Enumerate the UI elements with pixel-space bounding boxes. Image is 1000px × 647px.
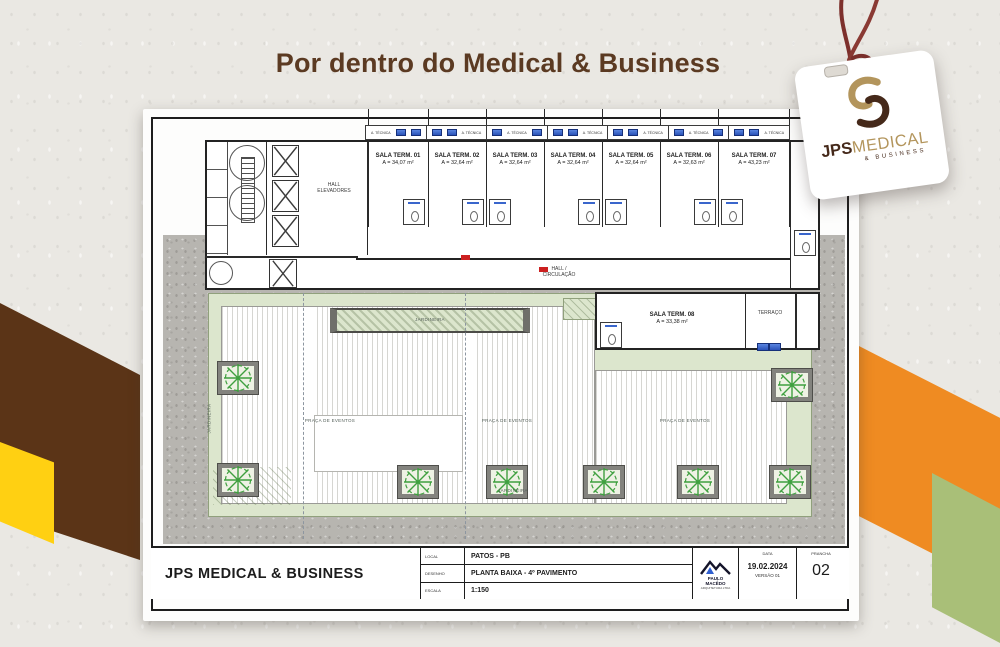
axis-line — [303, 293, 304, 539]
ac-unit-icon — [411, 129, 421, 136]
ac-unit-pair — [757, 338, 781, 356]
jardineira-label-vertical: JARDINEIRA — [207, 374, 212, 434]
architect-logo-cell: PAULOMACÊDO ARQUITETURA LTDA — [693, 548, 739, 599]
rooftop-ac-strip: A. TÉCNICA A. TÉCNICA A. TÉCNICA A. TÉCN… — [365, 125, 790, 140]
desenho-value: PLANTA BAIXA - 4º PAVIMENTO — [465, 565, 692, 581]
page-title: Por dentro do Medical & Business — [140, 48, 856, 79]
corridor-hall-circulacao: HALL / CIRCULAÇÃO — [356, 258, 790, 290]
local-value: PATOS - PB — [465, 548, 692, 564]
ac-segment: A. TÉCNICA — [366, 126, 427, 139]
ac-unit-icon — [492, 129, 502, 136]
date-cell: DATA 19.02.2024 VERSÃO 01 — [739, 548, 797, 599]
wc — [489, 199, 511, 225]
room-name: SALA TERM. 07 — [723, 153, 785, 160]
planter-tree — [677, 465, 719, 499]
ac-unit-icon — [628, 129, 638, 136]
ac-segment: A. TÉCNICA — [427, 126, 488, 139]
planter-tree — [771, 368, 813, 402]
wall — [205, 256, 358, 258]
sheet-number-cell: PRANCHA 02 — [797, 548, 845, 599]
ac-segment: A. TÉCNICA — [487, 126, 548, 139]
ac-segment: A. TÉCNICA — [729, 126, 789, 139]
fire-extinguisher-mark — [539, 267, 548, 272]
hall-elevadores-label: HALL ELEVADORES — [313, 182, 355, 194]
title-block-row-local: LOCAL PATOS - PB — [421, 548, 692, 565]
jps-swirl-logo-icon — [837, 71, 900, 134]
ac-segment: A. TÉCNICA — [608, 126, 669, 139]
ac-unit-icon — [749, 129, 759, 136]
wc — [403, 199, 425, 225]
ac-unit-icon — [568, 129, 578, 136]
date-label: DATA — [739, 551, 796, 556]
praca-label: PRAÇA DE EVENTOS — [640, 418, 730, 423]
fire-extinguisher-mark — [461, 255, 470, 260]
room-area: A = 43,23 m² — [723, 160, 785, 167]
plan-sheet: JARDINEIRA PRAÇA DE EVENTOS PRAÇA DE EVE… — [143, 109, 859, 621]
title-block-table: LOCAL PATOS - PB DESENHO PLANTA BAIXA - … — [421, 548, 693, 599]
balcony-strip — [207, 142, 228, 255]
poster: Por dentro do Medical & Business JARDINE… — [0, 0, 1000, 647]
wc — [605, 199, 627, 225]
planter-tree — [217, 361, 259, 395]
ac-unit-icon — [757, 343, 769, 351]
version-value: VERSÃO 01 — [739, 573, 796, 578]
ac-segment: A. TÉCNICA — [669, 126, 730, 139]
desenho-label: DESENHO — [421, 565, 465, 581]
jardineira-label: JARDINEIRA — [473, 488, 553, 493]
ac-unit-icon — [553, 129, 563, 136]
escala-label: ESCALA — [421, 583, 465, 599]
local-label: LOCAL — [421, 548, 465, 564]
title-block-row-escala: ESCALA 1:150 — [421, 583, 692, 599]
ac-unit-icon — [532, 129, 542, 136]
terraco-label: TERRAÇO — [749, 310, 791, 316]
planter-tree — [486, 465, 528, 499]
praca-label: PRAÇA DE EVENTOS — [285, 418, 375, 423]
room-name: SALA TERM. 03 — [489, 153, 541, 160]
tag-hole — [823, 64, 848, 78]
room-area: A = 32,64 m² — [431, 160, 483, 167]
room-area: A = 32,64 m² — [605, 160, 657, 167]
ac-unit-icon — [396, 129, 406, 136]
ac-unit-icon — [447, 129, 457, 136]
room-area: A = 32,64 m² — [547, 160, 599, 167]
ac-unit-icon — [613, 129, 623, 136]
date-value: 19.02.2024 — [739, 562, 796, 571]
room-name: SALA TERM. 01 — [371, 153, 425, 160]
elevator-shaft — [272, 215, 299, 247]
architect-firm: ARQUITETURA LTDA — [701, 586, 731, 590]
room-name: SALA TERM. 06 — [663, 153, 715, 160]
brand-tag: JPSMEDICAL & BUSINESS — [793, 49, 950, 201]
ac-unit-icon — [713, 129, 723, 136]
wc — [721, 199, 743, 225]
room-name: SALA TERM. 04 — [547, 153, 599, 160]
stair-treads — [241, 157, 255, 223]
ac-unit-icon — [432, 129, 442, 136]
room-sala-term-08-block: SALA TERM. 08A = 33,38 m² TERRAÇO — [595, 292, 820, 350]
ac-label: A. TÉCNICA — [462, 131, 482, 135]
ac-unit-icon — [734, 129, 744, 136]
ac-label: A. TÉCNICA — [583, 131, 603, 135]
axis-line — [465, 293, 466, 539]
planter-tree — [397, 465, 439, 499]
wc — [462, 199, 484, 225]
wc — [794, 230, 816, 256]
hall-elevadores: HALL ELEVADORES — [301, 142, 368, 255]
title-block-row-desenho: DESENHO PLANTA BAIXA - 4º PAVIMENTO — [421, 565, 692, 582]
ac-label: A. TÉCNICA — [371, 131, 391, 135]
wall — [795, 294, 797, 348]
wc — [578, 199, 600, 225]
ac-segment: A. TÉCNICA — [548, 126, 609, 139]
wc — [600, 322, 622, 348]
elevator-shaft — [272, 180, 299, 212]
room-name: SALA TERM. 05 — [605, 153, 657, 160]
planter-tree — [769, 465, 811, 499]
wc — [694, 199, 716, 225]
room-area: A = 32,63 m² — [663, 160, 715, 167]
mountain-logo-icon — [699, 558, 733, 576]
room-area: A = 34,07 m² — [371, 160, 425, 167]
room-area: A = 33,38 m² — [627, 319, 717, 326]
central-void — [314, 415, 463, 472]
project-name: JPS MEDICAL & BUSINESS — [151, 548, 421, 599]
ac-unit-icon — [674, 129, 684, 136]
prancha-number: 02 — [797, 562, 845, 580]
ac-unit-icon — [769, 343, 781, 351]
praca-label: PRAÇA DE EVENTOS — [462, 418, 552, 423]
title-block: JPS MEDICAL & BUSINESS LOCAL PATOS - PB … — [151, 546, 849, 599]
elevator-shaft — [272, 145, 299, 177]
escala-value: 1:150 — [465, 583, 692, 599]
room-name: SALA TERM. 08 — [627, 312, 717, 319]
room-area: A = 32,64 m² — [489, 160, 541, 167]
elevator-shaft — [269, 259, 297, 288]
planter-tree — [217, 463, 259, 497]
ac-label: A. TÉCNICA — [689, 131, 709, 135]
prancha-label: PRANCHA — [797, 551, 845, 556]
ac-label: A. TÉCNICA — [507, 131, 527, 135]
ac-label: A. TÉCNICA — [643, 131, 663, 135]
room-name: SALA TERM. 02 — [431, 153, 483, 160]
ac-label: A. TÉCNICA — [764, 131, 784, 135]
staircase — [227, 142, 267, 255]
planter-tree — [583, 465, 625, 499]
service-stair — [209, 261, 233, 285]
